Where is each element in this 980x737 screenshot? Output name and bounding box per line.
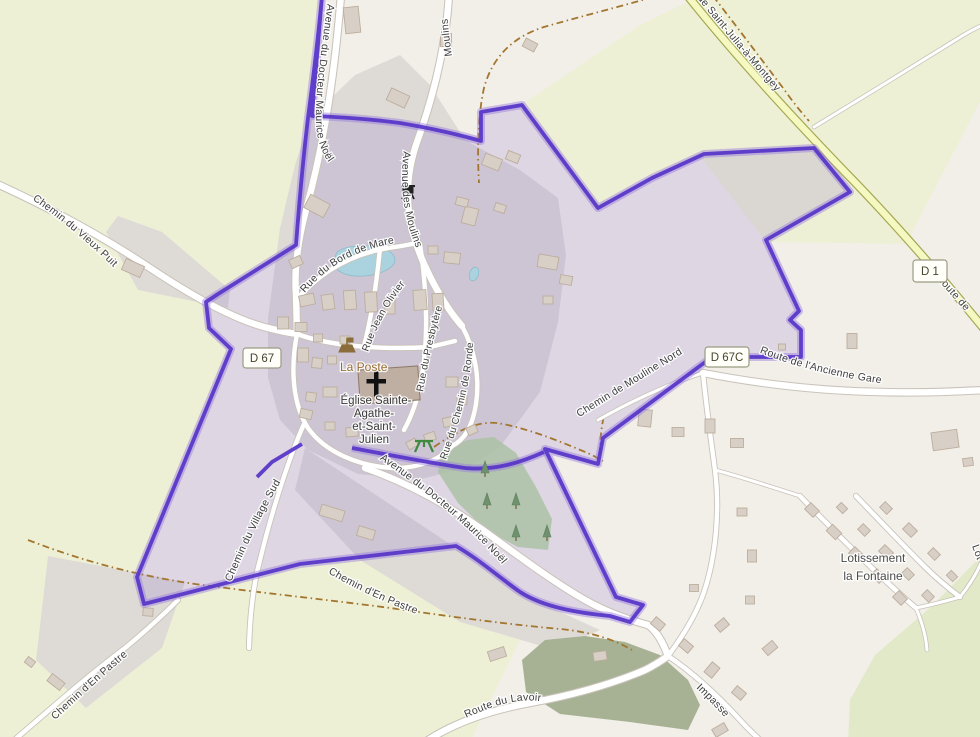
street-label-route-ancienne-gare: Route de l'Ancienne Gare — [758, 344, 882, 386]
map-svg[interactable]: Avenue du Docteur Maurice Noël Avenue du… — [0, 0, 980, 737]
road-badge-d1: D 1 — [913, 260, 947, 282]
church-label-line1: Église Sainte- — [341, 394, 412, 407]
poi-label-la-poste: La Poste — [340, 360, 388, 374]
svg-text:Impasse: Impasse — [694, 681, 732, 719]
church-label-line2: Agathe- — [354, 408, 394, 420]
map-canvas[interactable]: Avenue du Docteur Maurice Noël Avenue du… — [0, 0, 980, 737]
road-badge-d67c: D 67C — [705, 347, 749, 367]
street-label-lot-partial: Lot — [969, 543, 980, 562]
church-label-line3: et-Saint- — [352, 421, 396, 433]
svg-text:Lot: Lot — [969, 543, 980, 562]
hamlet-label-lotissement-line2: la Fontaine — [843, 569, 903, 583]
road-badge-d67: D 67 — [243, 348, 281, 368]
street-label-impasse: Impasse — [694, 681, 732, 719]
hamlet-label-lotissement-line1: Lotissement — [841, 551, 906, 565]
svg-text:Route de l'Ancienne Gare: Route de l'Ancienne Gare — [758, 344, 882, 386]
svg-text:D 1: D 1 — [921, 266, 939, 278]
church-label-line4: Julien — [359, 434, 389, 446]
svg-text:D 67C: D 67C — [711, 352, 744, 364]
svg-text:D 67: D 67 — [250, 353, 274, 365]
